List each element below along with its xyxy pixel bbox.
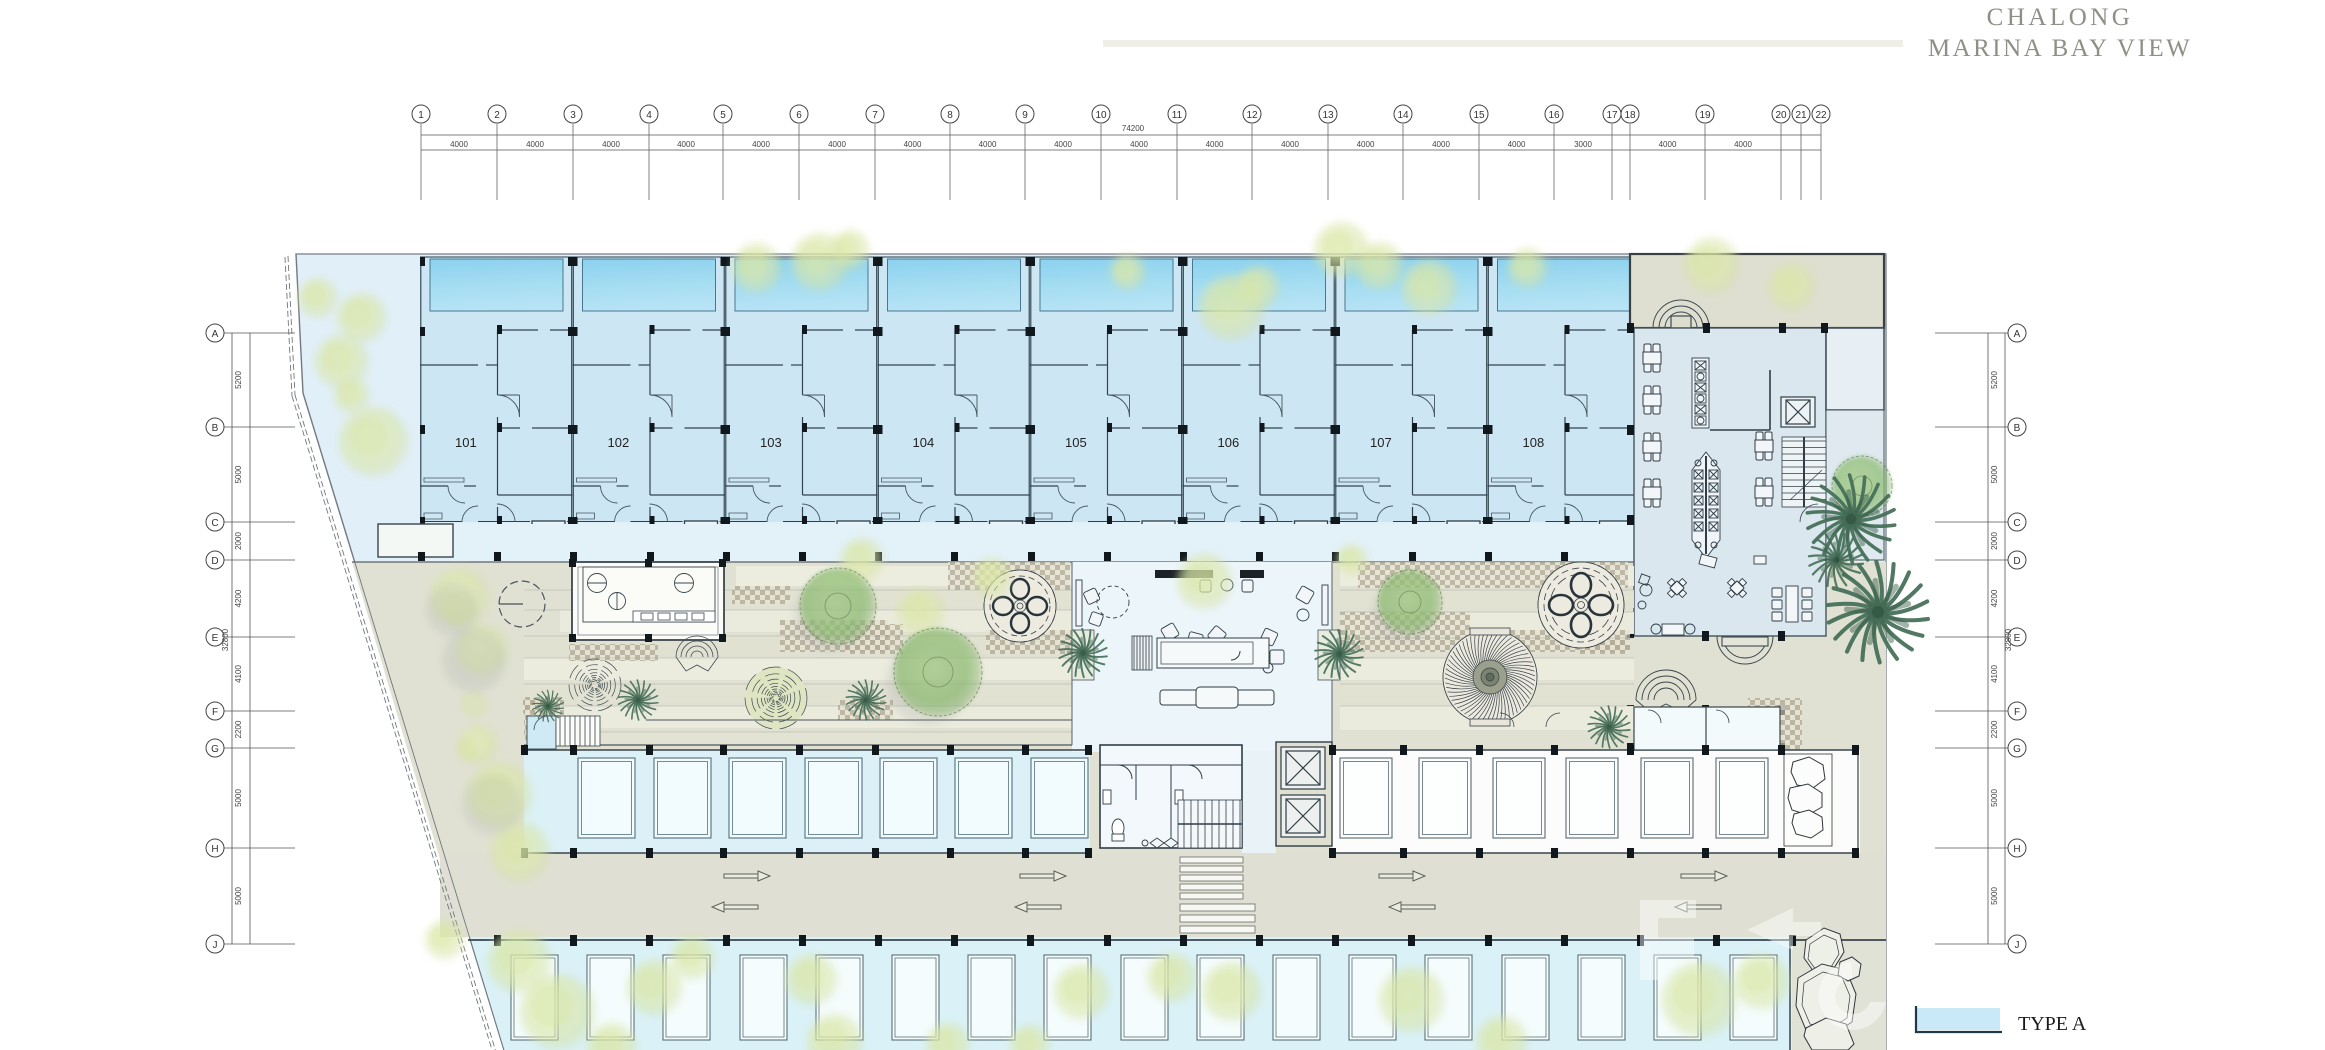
- svg-text:14: 14: [1397, 110, 1409, 121]
- svg-text:10: 10: [1095, 110, 1107, 121]
- svg-text:G: G: [2013, 744, 2021, 755]
- svg-text:4200: 4200: [1990, 589, 1999, 607]
- svg-text:4000: 4000: [1281, 140, 1299, 149]
- svg-text:9: 9: [1022, 110, 1028, 121]
- svg-text:TYPE A: TYPE A: [2018, 1013, 2087, 1035]
- svg-text:4000: 4000: [1206, 140, 1224, 149]
- svg-text:5: 5: [720, 110, 726, 121]
- svg-text:4000: 4000: [1054, 140, 1072, 149]
- svg-text:102: 102: [608, 435, 630, 450]
- svg-text:F: F: [2014, 707, 2020, 718]
- svg-text:22: 22: [1815, 110, 1827, 121]
- svg-text:4000: 4000: [828, 140, 846, 149]
- svg-text:21: 21: [1795, 110, 1807, 121]
- svg-text:4000: 4000: [1357, 140, 1375, 149]
- svg-text:4000: 4000: [602, 140, 620, 149]
- svg-text:1: 1: [418, 110, 424, 121]
- svg-text:J: J: [2015, 940, 2020, 951]
- svg-text:7: 7: [872, 110, 878, 121]
- svg-text:5200: 5200: [1990, 371, 1999, 389]
- svg-text:11: 11: [1172, 110, 1183, 121]
- svg-text:D: D: [2013, 556, 2020, 567]
- svg-text:4100: 4100: [234, 665, 243, 683]
- svg-text:4200: 4200: [234, 589, 243, 607]
- svg-text:13: 13: [1322, 110, 1334, 121]
- svg-text:B: B: [212, 423, 219, 434]
- svg-text:4000: 4000: [1508, 140, 1526, 149]
- svg-text:4000: 4000: [1734, 140, 1752, 149]
- svg-text:4000: 4000: [1130, 140, 1148, 149]
- svg-text:5000: 5000: [234, 789, 243, 807]
- svg-text:20: 20: [1775, 110, 1787, 121]
- svg-text:12: 12: [1246, 110, 1258, 121]
- svg-text:2200: 2200: [1990, 720, 1999, 738]
- svg-text:4: 4: [646, 110, 652, 121]
- svg-text:32800: 32800: [2004, 628, 2013, 651]
- svg-text:5000: 5000: [1990, 465, 1999, 483]
- svg-text:H: H: [211, 844, 218, 855]
- svg-text:5000: 5000: [234, 887, 243, 905]
- svg-text:107: 107: [1370, 435, 1392, 450]
- svg-text:106: 106: [1218, 435, 1240, 450]
- svg-text:B: B: [2014, 423, 2021, 434]
- svg-text:5200: 5200: [234, 371, 243, 389]
- svg-text:5000: 5000: [1990, 887, 1999, 905]
- svg-text:2: 2: [494, 110, 500, 121]
- svg-text:4000: 4000: [526, 140, 544, 149]
- svg-text:2000: 2000: [1990, 532, 1999, 550]
- svg-text:15: 15: [1473, 110, 1485, 121]
- svg-text:4000: 4000: [1659, 140, 1677, 149]
- svg-text:F: F: [212, 707, 218, 718]
- svg-text:C: C: [211, 518, 218, 529]
- svg-text:4000: 4000: [677, 140, 695, 149]
- svg-text:D: D: [211, 556, 218, 567]
- svg-text:2200: 2200: [234, 720, 243, 738]
- svg-text:108: 108: [1523, 435, 1545, 450]
- svg-text:4100: 4100: [1990, 665, 1999, 683]
- svg-text:74200: 74200: [1122, 124, 1145, 133]
- svg-text:E: E: [212, 633, 219, 644]
- svg-text:4000: 4000: [752, 140, 770, 149]
- svg-text:8: 8: [947, 110, 953, 121]
- svg-text:4000: 4000: [979, 140, 997, 149]
- svg-text:6: 6: [796, 110, 802, 121]
- svg-text:E: E: [2014, 633, 2021, 644]
- svg-text:G: G: [211, 744, 219, 755]
- svg-text:104: 104: [913, 435, 935, 450]
- svg-text:MARINA BAY VIEW: MARINA BAY VIEW: [1928, 35, 2192, 62]
- svg-text:4000: 4000: [450, 140, 468, 149]
- svg-text:101: 101: [455, 435, 477, 450]
- svg-text:17: 17: [1606, 110, 1618, 121]
- svg-text:5000: 5000: [234, 465, 243, 483]
- svg-text:A: A: [212, 329, 219, 340]
- svg-text:A: A: [2014, 329, 2021, 340]
- svg-text:4000: 4000: [904, 140, 922, 149]
- svg-text:5000: 5000: [1990, 789, 1999, 807]
- svg-text:3: 3: [570, 110, 576, 121]
- svg-text:J: J: [213, 940, 218, 951]
- svg-text:3000: 3000: [1574, 140, 1592, 149]
- svg-text:103: 103: [760, 435, 782, 450]
- svg-text:105: 105: [1065, 435, 1087, 450]
- svg-text:4000: 4000: [1432, 140, 1450, 149]
- svg-text:2000: 2000: [234, 532, 243, 550]
- svg-text:CHALONG: CHALONG: [1987, 4, 2134, 31]
- svg-text:18: 18: [1624, 110, 1636, 121]
- svg-text:16: 16: [1548, 110, 1560, 121]
- svg-text:C: C: [2013, 518, 2020, 529]
- svg-text:19: 19: [1699, 110, 1711, 121]
- svg-text:32800: 32800: [221, 628, 230, 651]
- svg-text:H: H: [2013, 844, 2020, 855]
